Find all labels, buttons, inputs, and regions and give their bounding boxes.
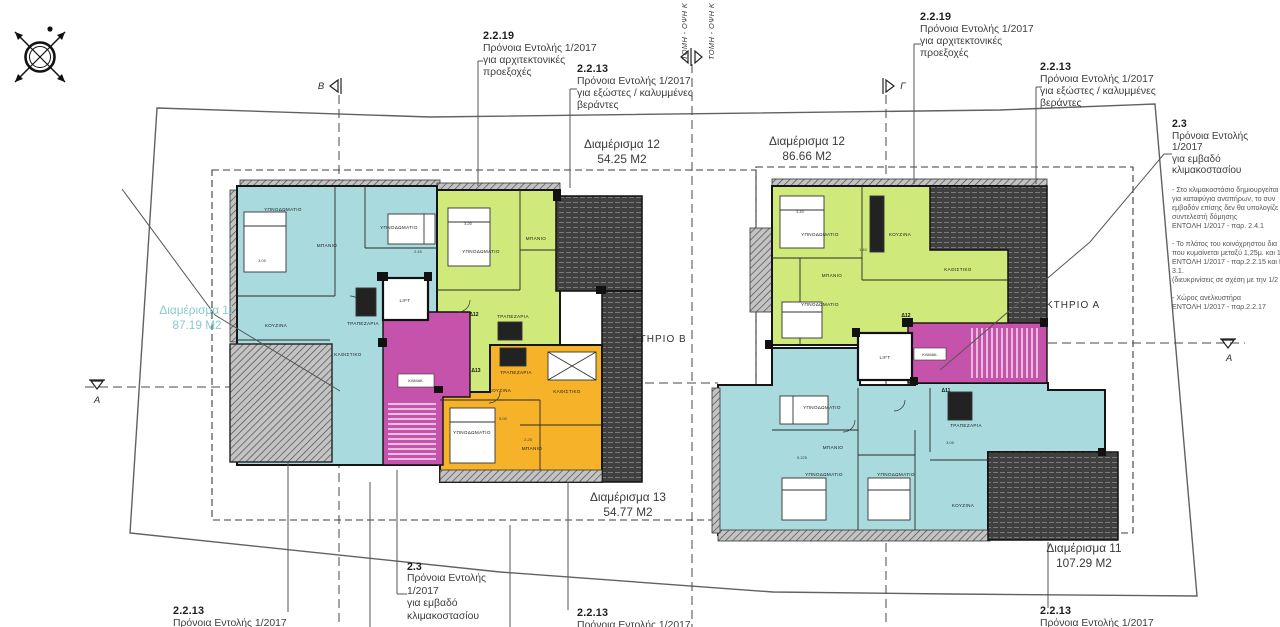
room-label: ΥΠΝΟΔΩΜΑΤΙΟ xyxy=(453,430,491,435)
balcony-hatch-strip xyxy=(440,470,602,482)
room-label: ΤΡΑΠΕΖΑΡΙΑ xyxy=(500,370,532,375)
dimension-label: 3.20 xyxy=(464,221,473,226)
note-stair-right-detail: - Στο κλιμακοστάσιο δημιουργείται για κα… xyxy=(1172,186,1280,312)
room-label: ΚΑΘΙΣΤΙΚΟ xyxy=(553,389,581,394)
section-marker-b-label: Β xyxy=(318,81,325,92)
note-arch-right: 2.2.19 Πρόνοια Εντολής 1/2017 για αρχιτε… xyxy=(920,11,1034,61)
balcony-hatch-strip xyxy=(718,530,990,541)
section-marker-a-right-label: A xyxy=(1225,353,1232,364)
stairs-label: ΚΛΙΜΑΚ. xyxy=(922,353,937,357)
dimension-label: 1.40 xyxy=(859,247,868,252)
balcony-hatch-strip xyxy=(750,228,772,312)
room-label: ΥΠΝΟΔΩΜΑΤΙΟ xyxy=(877,472,915,477)
room-label: ΜΠΑΝΙΟ xyxy=(822,273,843,278)
note-balc-bottom-mid: 2.2.13 Πρόνοια Εντολής 1/2017 xyxy=(577,607,691,627)
room-label: ΚΟΥΖΙΝΑ xyxy=(265,323,288,328)
room-label: ΥΠΝΟΔΩΜΑΤΙΟ xyxy=(801,302,839,307)
dimension-label: 3.40 xyxy=(796,209,805,214)
note-balc-bottom-right: 2.2.13 Πρόνοια Εντολής 1/2017 xyxy=(1040,605,1154,627)
terrace-hatch xyxy=(230,344,332,462)
note-balc-right: 2.2.13 Πρόνοια Εντολής 1/2017 για εξώστε… xyxy=(1040,61,1156,111)
roof-dark-area xyxy=(556,196,642,291)
room-label: ΥΠΝΟΔΩΜΑΤΙΟ xyxy=(803,405,841,410)
building-a-plan: ΚΛΙΜΑΚ. LIFT ΥΠΝΟΔΩΜΑΤΙΟ ΚΟΥΖΙΝΑ ΜΠΑΝΙΟ … xyxy=(712,179,1118,541)
room-label: ΚΑΘΙΣΤΙΚΟ xyxy=(944,267,972,272)
room-label: ΜΠΑΝΙΟ xyxy=(526,236,547,241)
room-label: ΜΠΑΝΙΟ xyxy=(317,243,338,248)
compass-north-icon xyxy=(15,26,65,82)
balcony-hatch-strip xyxy=(712,388,720,533)
room-label: ΥΠΝΟΔΩΜΑΤΙΟ xyxy=(380,225,418,230)
lift-label: LIFT xyxy=(399,298,410,304)
apartment-id-label: Δ12 xyxy=(901,313,910,319)
roof-dark-terrace xyxy=(988,452,1118,540)
room-label: ΚΟΥΖΙΝΑ xyxy=(489,388,512,393)
note-stair-right: 2.3 Πρόνοια Εντολής 1/2017 για εμβαδό κλ… xyxy=(1172,119,1248,177)
room-label: ΤΡΑΠΕΖΑΡΙΑ xyxy=(497,314,529,319)
floor-plan-sheet: ΚΛΙΜΑΚ. LIFT ΥΠΝΟΔΩΜΑΤΙΟ ΥΠΝΟΔΩΜΑΤΙΟ ΜΠΑ… xyxy=(0,0,1280,627)
room-label: ΥΠΝΟΔΩΜΑΤΙΟ xyxy=(801,232,839,237)
section-marker-a-left-label: A xyxy=(93,395,100,406)
note-balc-top: 2.2.13 Πρόνοια Εντολής 1/2017 για εξώστε… xyxy=(577,63,693,113)
room-label: ΥΠΝΟΔΩΜΑΤΙΟ xyxy=(462,249,500,254)
apartment-id-label: Δ13 xyxy=(471,368,480,374)
building-a-label: ΚΤΗΡΙΟ Α xyxy=(1046,300,1100,311)
stairs-label: ΚΛΙΜΑΚ. xyxy=(408,379,423,383)
room-label: ΤΡΑΠΕΖΑΡΙΑ xyxy=(950,423,982,428)
room-label: ΥΠΝΟΔΩΜΑΤΙΟ xyxy=(264,207,302,212)
dimension-label: 5.225 xyxy=(797,455,808,460)
section-marker-gamma-label: Γ xyxy=(900,81,906,92)
building-b-plan: ΚΛΙΜΑΚ. LIFT ΥΠΝΟΔΩΜΑΤΙΟ ΥΠΝΟΔΩΜΑΤΙΟ ΜΠΑ… xyxy=(230,180,642,482)
apartment-id-label: Δ12 xyxy=(469,312,478,318)
room-label: ΜΠΑΝΙΟ xyxy=(823,445,844,450)
lift-label: LIFT xyxy=(879,355,890,361)
room-label: ΜΠΑΝΙΟ xyxy=(522,446,543,451)
room-label: ΚΟΥΖΙΝΑ xyxy=(952,503,975,508)
apartment-label-b11: Διαμέρισμα 11 87.19 M2 xyxy=(137,303,257,332)
dimension-label: 3.05 xyxy=(258,258,267,263)
dimension-label: 2.45 xyxy=(414,249,423,254)
dimension-label: 2.25 xyxy=(524,437,533,442)
apartment-label-b12: Διαμέρισμα 12 54.25 M2 xyxy=(562,137,682,166)
apartment-id-label: Δ11 xyxy=(942,388,951,394)
room-label: ΤΡΑΠΕΖΑΡΙΑ xyxy=(347,321,379,326)
room-label: ΥΠΝΟΔΩΜΑΤΙΟ xyxy=(805,472,843,477)
roof-dark-area xyxy=(602,291,642,482)
apartment-label-a12: Διαμέρισμα 12 86.66 M2 xyxy=(747,134,867,163)
note-balc-bottom-left: 2.2.13 Πρόνοια Εντολής 1/2017 xyxy=(173,605,287,627)
building-b-label: ΚΤΗΡΙΟ Β xyxy=(632,334,687,345)
apartment-label-b13: Διαμέρισμα 13 54.77 M2 xyxy=(568,490,688,519)
apartment-label-a11: Διαμέρισμα 11 107.29 M2 xyxy=(1024,541,1144,570)
section-title-left: ΤΟΜΗ - ΟΨΗ Κ xyxy=(680,2,689,60)
note-stair-bottom: 2.3 Πρόνοια Εντολής 1/2017 για εμβαδό κλ… xyxy=(407,561,486,623)
room-label: ΚΑΘΙΣΤΙΚΟ xyxy=(334,352,362,357)
room-label: ΚΟΥΖΙΝΑ xyxy=(889,232,912,237)
dimension-label: 5.00 xyxy=(499,416,508,421)
dimension-label: 3.05 xyxy=(946,440,955,445)
section-title-right: ΤΟΜΗ - ΟΨΗ Κ xyxy=(707,2,716,60)
